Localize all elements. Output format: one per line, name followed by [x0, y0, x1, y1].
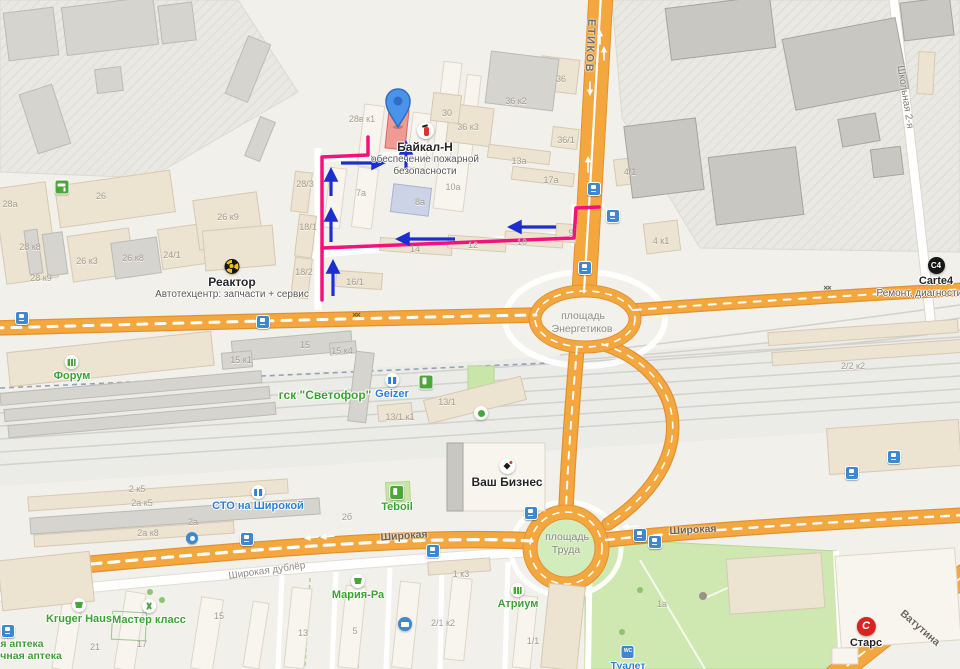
map-base-graphics: [0, 0, 960, 669]
map-canvas[interactable]: ЕТИКОВШкольная 2-яплощадьЭнергетиковплощ…: [0, 0, 960, 669]
